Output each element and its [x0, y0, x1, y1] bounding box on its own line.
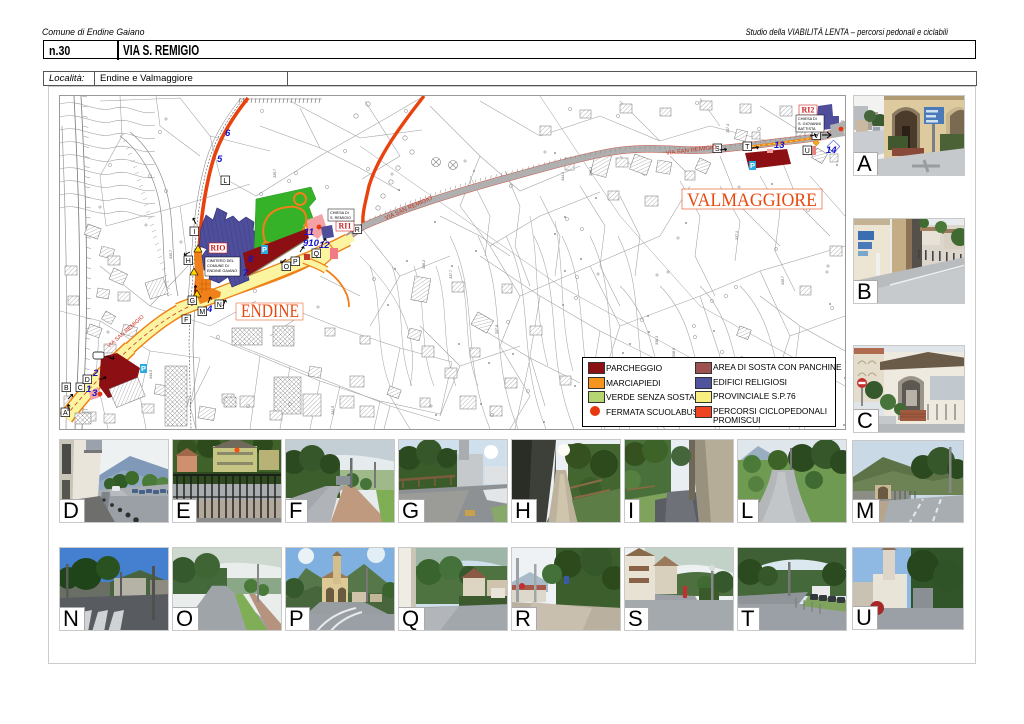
- svg-text:I: I: [193, 229, 195, 236]
- svg-text:13: 13: [774, 140, 785, 151]
- svg-text:337.0: 337.0: [495, 325, 499, 334]
- svg-text:344.5: 344.5: [149, 370, 153, 379]
- svg-text:P: P: [293, 259, 298, 266]
- svg-text:M: M: [199, 309, 205, 316]
- svg-text:335.7: 335.7: [169, 249, 173, 259]
- svg-text:H: H: [186, 258, 191, 265]
- svg-text:RI1: RI1: [338, 222, 351, 231]
- svg-text:S. GIOVANNI: S. GIOVANNI: [798, 122, 821, 126]
- svg-text:P: P: [750, 161, 755, 170]
- svg-text:CIMITERO DEL: CIMITERO DEL: [207, 259, 234, 263]
- svg-text:341.5: 341.5: [331, 406, 335, 415]
- svg-text:910: 910: [303, 238, 320, 249]
- svg-text:P: P: [141, 364, 146, 373]
- svg-text:VALMAGGIORE: VALMAGGIORE: [687, 190, 817, 211]
- svg-text:336.9: 336.9: [672, 348, 676, 357]
- svg-text:2: 2: [92, 368, 99, 379]
- svg-text:F: F: [184, 317, 188, 324]
- svg-text:RIO: RIO: [210, 244, 225, 253]
- svg-text:1: 1: [86, 384, 91, 395]
- svg-text:337.1: 337.1: [735, 231, 739, 240]
- svg-text:ENDINE: ENDINE: [241, 301, 299, 322]
- svg-text:4: 4: [206, 304, 213, 315]
- svg-text:VIA SAN REMIGIO: VIA SAN REMIGIO: [384, 195, 433, 221]
- svg-text:3: 3: [92, 388, 98, 399]
- svg-text:R: R: [355, 227, 360, 234]
- svg-text:336.3: 336.3: [589, 167, 593, 176]
- svg-text:P: P: [262, 245, 267, 254]
- svg-text:COMUNE DI: COMUNE DI: [207, 264, 229, 268]
- svg-text:G: G: [190, 298, 195, 305]
- svg-text:337.7: 337.7: [449, 269, 453, 279]
- svg-text:Q: Q: [314, 251, 320, 258]
- svg-text:CHIESA DI: CHIESA DI: [330, 211, 349, 215]
- svg-text:6: 6: [225, 128, 231, 139]
- svg-text:A: A: [63, 410, 68, 417]
- svg-text:D: D: [85, 377, 90, 384]
- svg-text:B: B: [64, 385, 69, 392]
- svg-text:336.2: 336.2: [422, 260, 426, 269]
- svg-text:S. REMIGIO: S. REMIGIO: [330, 216, 351, 220]
- svg-text:8: 8: [248, 254, 254, 265]
- svg-text:339.7: 339.7: [781, 275, 785, 285]
- svg-text:RI2: RI2: [801, 106, 814, 115]
- svg-text:337.4: 337.4: [726, 124, 730, 133]
- svg-text:11: 11: [304, 227, 314, 238]
- svg-text:U: U: [805, 148, 810, 155]
- svg-text:5: 5: [217, 154, 223, 165]
- svg-text:344.1: 344.1: [561, 172, 565, 181]
- svg-text:14: 14: [826, 145, 837, 156]
- svg-text:7: 7: [243, 268, 249, 279]
- svg-text:CHIESA DI: CHIESA DI: [798, 117, 817, 121]
- svg-text:336.3: 336.3: [655, 336, 659, 345]
- svg-text:335.7: 335.7: [273, 168, 277, 178]
- svg-text:BATTISTA: BATTISTA: [798, 127, 816, 131]
- svg-text:C: C: [78, 385, 83, 392]
- svg-text:O: O: [284, 264, 290, 271]
- svg-text:N: N: [217, 302, 222, 309]
- svg-text:T: T: [745, 144, 750, 151]
- svg-text:12: 12: [319, 240, 330, 251]
- svg-text:ENDINE GAIANO: ENDINE GAIANO: [207, 269, 237, 273]
- svg-text:L: L: [223, 178, 227, 185]
